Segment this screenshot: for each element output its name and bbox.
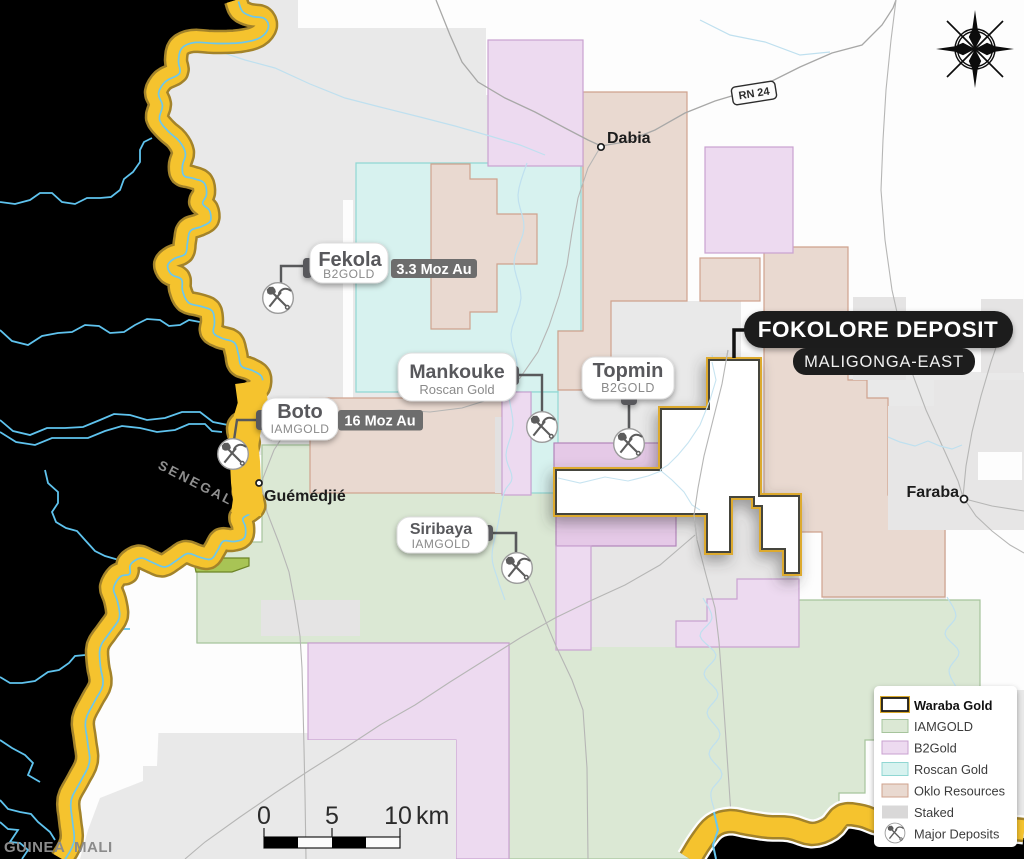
svg-text:Staked: Staked	[914, 805, 954, 820]
svg-text:Oklo Resources: Oklo Resources	[914, 784, 1005, 799]
svg-text:Boto: Boto	[277, 401, 323, 423]
svg-text:MALIGONGA-EAST: MALIGONGA-EAST	[804, 353, 964, 371]
svg-text:Roscan Gold: Roscan Gold	[914, 762, 988, 777]
svg-text:0: 0	[257, 802, 271, 830]
svg-text:FOKOLORE DEPOSIT: FOKOLORE DEPOSIT	[758, 317, 999, 342]
svg-text:IAMGOLD: IAMGOLD	[914, 719, 973, 734]
svg-text:Topmin: Topmin	[593, 360, 664, 382]
svg-text:3.3 Moz Au: 3.3 Moz Au	[396, 262, 471, 278]
svg-text:B2GOLD: B2GOLD	[601, 381, 655, 395]
svg-text:10: 10	[384, 802, 412, 830]
svg-text:Guémédjié: Guémédjié	[264, 488, 346, 505]
svg-text:Dabia: Dabia	[607, 130, 651, 147]
svg-text:IAMGOLD: IAMGOLD	[271, 422, 330, 436]
svg-text:B2GOLD: B2GOLD	[323, 267, 375, 281]
svg-text:Mankouke: Mankouke	[409, 361, 505, 383]
svg-text:Waraba Gold: Waraba Gold	[914, 698, 992, 713]
svg-text:Roscan Gold: Roscan Gold	[419, 382, 494, 397]
svg-text:Major Deposits: Major Deposits	[914, 827, 999, 842]
svg-text:IAMGOLD: IAMGOLD	[412, 537, 471, 551]
svg-text:16 Moz Au: 16 Moz Au	[344, 414, 415, 430]
svg-text:MALI: MALI	[74, 839, 113, 856]
svg-text:GUINEA: GUINEA	[4, 839, 65, 856]
svg-text:Faraba: Faraba	[907, 484, 960, 501]
svg-text:Siribaya: Siribaya	[410, 521, 472, 538]
svg-text:km: km	[416, 802, 449, 830]
svg-text:5: 5	[325, 802, 339, 830]
svg-text:B2Gold: B2Gold	[914, 741, 957, 756]
